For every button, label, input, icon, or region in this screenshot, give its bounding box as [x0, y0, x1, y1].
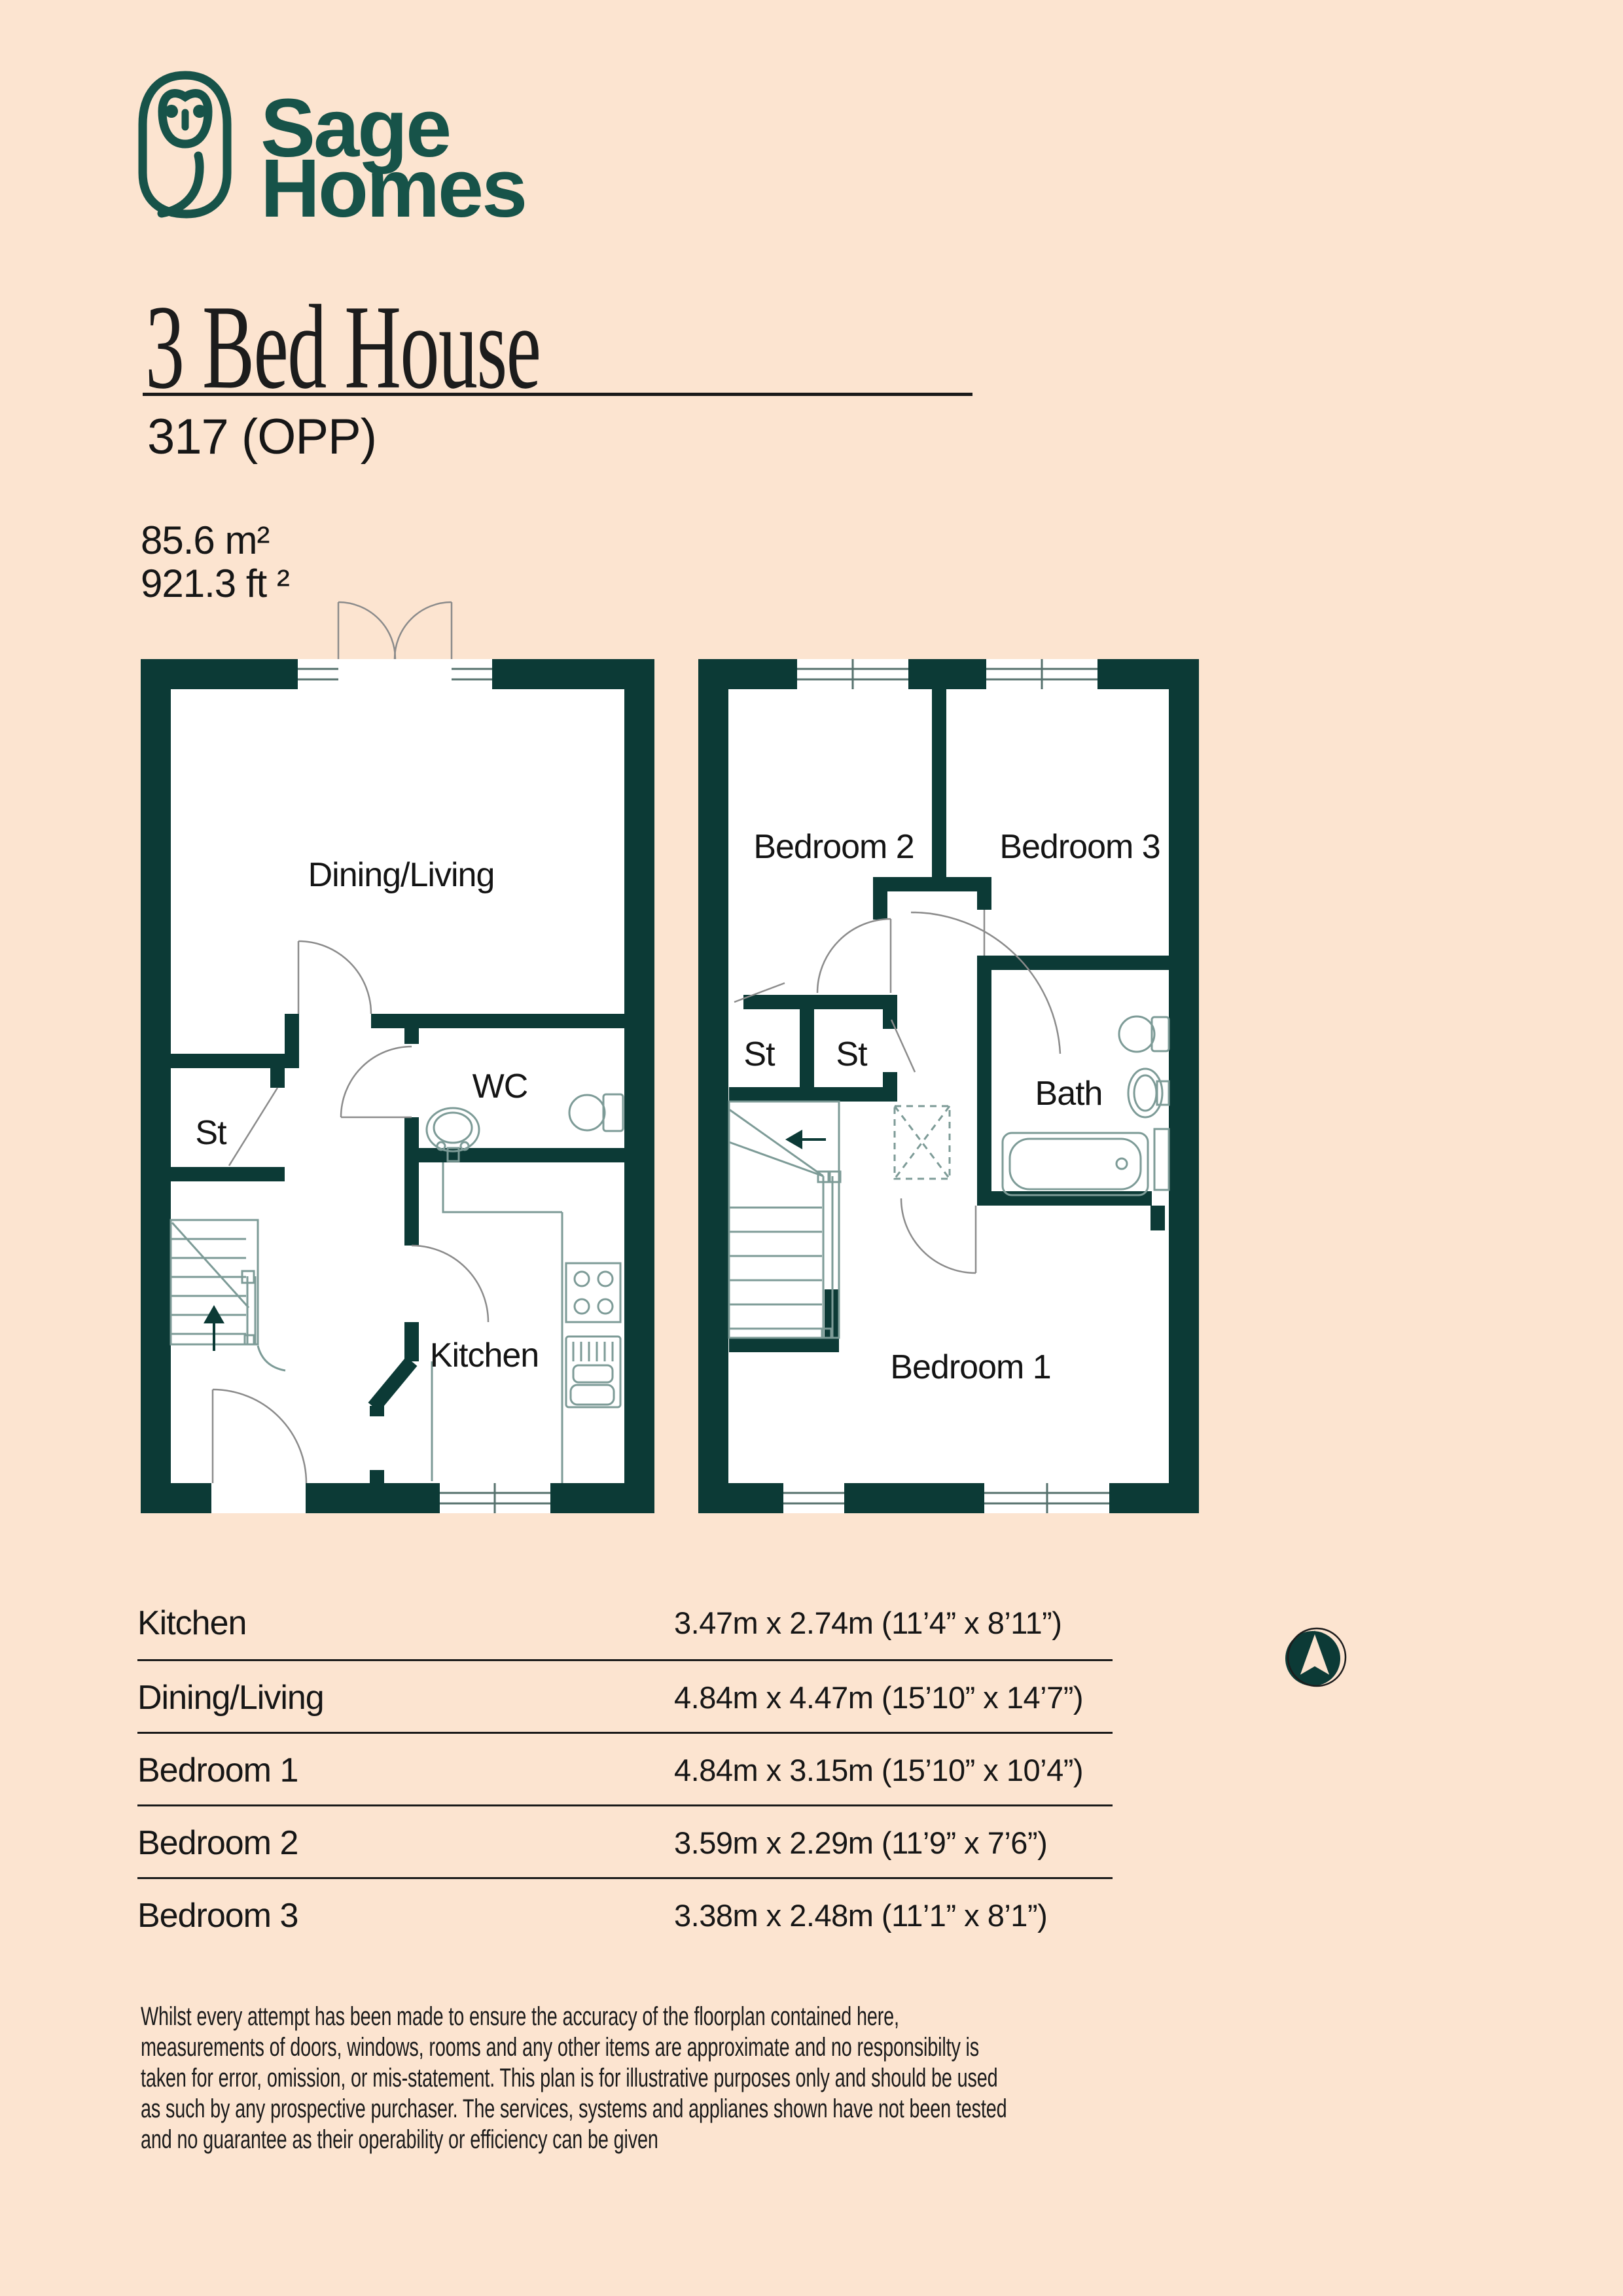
table-row: Bedroom 2 3.59m x 2.29m (11’9” x 7’6”) — [137, 1804, 1113, 1879]
brand-line2: Homes — [260, 158, 526, 219]
dim-room-size: 4.84m x 4.47m (15’10” x 14’7”) — [674, 1679, 1083, 1715]
dim-room-name: Bedroom 2 — [137, 1823, 298, 1863]
ground-floor-plan — [141, 602, 654, 1513]
dim-room-size: 3.59m x 2.29m (11’9” x 7’6”) — [674, 1825, 1047, 1861]
room-label-kitchen: Kitchen — [430, 1336, 539, 1375]
room-label-bath: Bath — [1035, 1074, 1103, 1113]
floor-plans — [118, 576, 1217, 1532]
table-row: Bedroom 3 3.38m x 2.48m (11’1” x 8’1”) — [137, 1877, 1113, 1952]
dim-room-size: 3.38m x 2.48m (11’1” x 8’1”) — [674, 1897, 1047, 1933]
table-row: Dining/Living 4.84m x 4.47m (15’10” x 14… — [137, 1659, 1113, 1734]
dim-room-size: 4.84m x 3.15m (15’10” x 10’4”) — [674, 1752, 1083, 1788]
dim-room-name: Bedroom 3 — [137, 1896, 298, 1935]
table-row: Bedroom 1 4.84m x 3.15m (15’10” x 10’4”) — [137, 1732, 1113, 1806]
dim-room-name: Kitchen — [137, 1604, 246, 1643]
room-label-first-st2: St — [836, 1035, 866, 1074]
plot-number: 317 (OPP) — [147, 408, 376, 465]
room-label-first-st1: St — [743, 1035, 774, 1074]
disclaimer-text: Whilst every attempt has been made to en… — [141, 2001, 1154, 2155]
title-rule — [143, 393, 972, 396]
room-label-wc: WC — [473, 1067, 528, 1106]
room-label-bedroom1: Bedroom 1 — [890, 1348, 1050, 1387]
dim-room-name: Bedroom 1 — [137, 1751, 298, 1790]
owl-logo-icon — [134, 69, 236, 219]
north-arrow-icon — [1276, 1617, 1361, 1702]
ground-interior — [171, 689, 624, 1483]
room-label-bedroom3: Bedroom 3 — [999, 827, 1160, 867]
dim-room-size: 3.47m x 2.74m (11’4” x 8’11”) — [674, 1605, 1061, 1641]
floorplan-page: { "brand": {"line1": "Sage", "line2": "H… — [0, 0, 1623, 2296]
room-label-dining-living: Dining/Living — [308, 855, 495, 895]
room-label-bedroom2: Bedroom 2 — [753, 827, 914, 867]
dim-room-name: Dining/Living — [137, 1678, 324, 1717]
area-metric: 85.6 m² — [141, 519, 289, 562]
room-label-ground-st: St — [195, 1113, 226, 1153]
brand-wordmark: Sage Homes — [260, 98, 526, 219]
table-row: Kitchen 3.47m x 2.74m (11’4” x 8’11”) — [137, 1587, 1113, 1659]
